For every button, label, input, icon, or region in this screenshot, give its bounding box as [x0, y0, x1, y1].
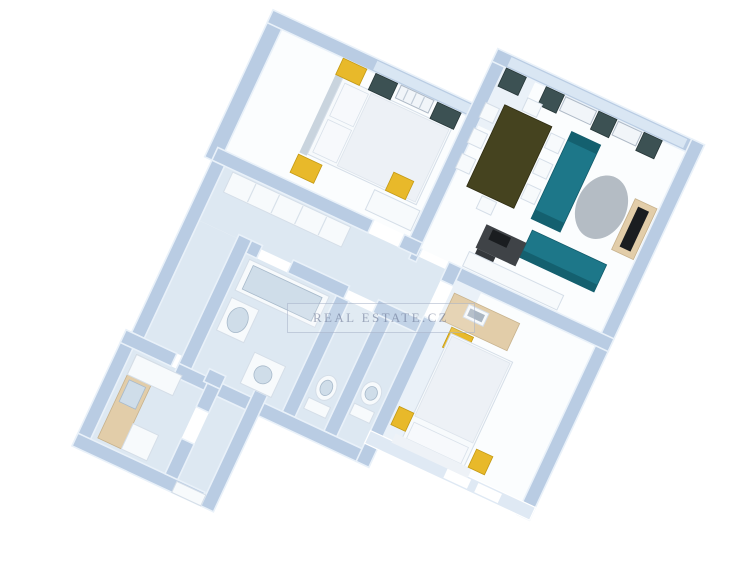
floorplan-svg — [0, 0, 749, 562]
apartment-3d-floorplan-render: REAL ESTATE.CZ — [0, 0, 749, 562]
watermark: REAL ESTATE.CZ — [287, 303, 475, 333]
rotated-plan — [70, 0, 704, 562]
watermark-text: REAL ESTATE.CZ — [313, 310, 449, 326]
